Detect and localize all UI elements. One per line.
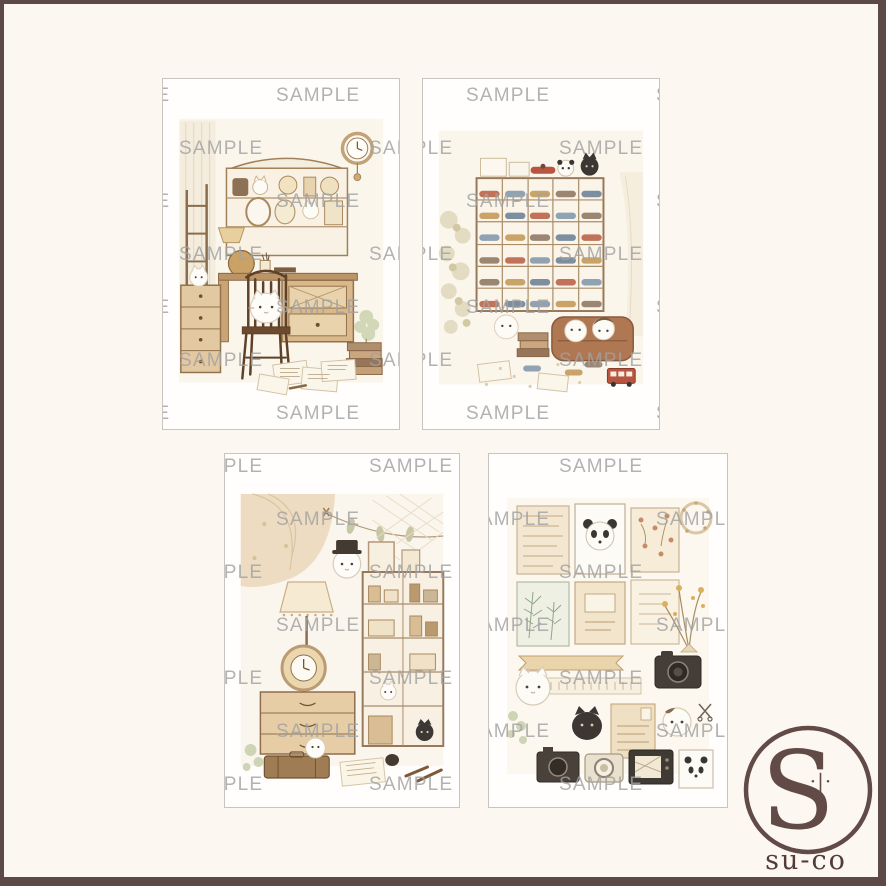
watermark-text: SAMPLE (369, 562, 453, 584)
suco-logo: S ·|· su-co (724, 718, 886, 880)
watermark-text: SAMPLE (656, 191, 659, 213)
watermark-text: SAMPLE (369, 244, 399, 266)
watermark-text: SAMPLE (163, 191, 170, 213)
watermark-text: SAMPLE (656, 509, 727, 531)
watermark-text: SAMPLE (276, 191, 360, 213)
watermark-text: SAMPLE (489, 509, 550, 531)
watermark-text: SAMPLE (423, 244, 453, 266)
watermark-text: SAMPLE (559, 668, 643, 690)
watermark-text: SAMPLE (163, 85, 170, 107)
watermark-text: SAMPLE (225, 562, 263, 584)
watermark-text: SAMPLE (225, 668, 263, 690)
watermark-layer: SAMPLESAMPLESAMPLESAMPLESAMPLESAMPLESAMP… (489, 454, 727, 807)
watermark-text: SAMPLE (179, 244, 263, 266)
watermark-text: SAMPLE (276, 297, 360, 319)
logo-marks: ·|· (810, 769, 832, 794)
watermark-text: SAMPLE (276, 403, 360, 425)
watermark-text: SAMPLE (276, 509, 360, 531)
sample-card-1: SAMPLESAMPLESAMPLESAMPLESAMPLESAMPLESAMP… (162, 78, 400, 430)
watermark-text: SAMPLE (369, 668, 453, 690)
watermark-text: SAMPLE (466, 403, 550, 425)
watermark-text: SAMPLE (559, 350, 643, 372)
watermark-text: SAMPLE (466, 191, 550, 213)
watermark-text: SAMPLE (179, 138, 263, 160)
watermark-text: SAMPLE (489, 721, 550, 743)
watermark-text: SAMPLE (656, 615, 727, 637)
watermark-text: SAMPLE (369, 774, 453, 796)
product-image: SAMPLESAMPLESAMPLESAMPLESAMPLESAMPLESAMP… (0, 0, 886, 886)
watermark-text: SAMPLE (163, 403, 170, 425)
watermark-text: SAMPLE (466, 85, 550, 107)
watermark-text: SAMPLE (369, 138, 399, 160)
watermark-text: SAMPLE (466, 297, 550, 319)
watermark-text: SAMPLE (559, 562, 643, 584)
watermark-text: SAMPLE (559, 244, 643, 266)
watermark-text: SAMPLE (656, 403, 659, 425)
watermark-text: SAMPLE (656, 721, 727, 743)
watermark-text: SAMPLE (489, 615, 550, 637)
watermark-text: SAMPLE (179, 350, 263, 372)
watermark-layer: SAMPLESAMPLESAMPLESAMPLESAMPLESAMPLESAMP… (225, 454, 459, 807)
watermark-text: SAMPLE (276, 721, 360, 743)
watermark-text: SAMPLE (559, 456, 643, 478)
watermark-layer: SAMPLESAMPLESAMPLESAMPLESAMPLESAMPLESAMP… (163, 79, 399, 429)
watermark-text: SAMPLE (656, 297, 659, 319)
watermark-text: SAMPLE (423, 350, 453, 372)
watermark-text: SAMPLE (423, 138, 453, 160)
watermark-text: SAMPLE (369, 456, 453, 478)
watermark-text: SAMPLE (163, 297, 170, 319)
sample-card-4: SAMPLESAMPLESAMPLESAMPLESAMPLESAMPLESAMP… (488, 453, 728, 808)
watermark-text: SAMPLE (559, 138, 643, 160)
watermark-text: SAMPLE (656, 85, 659, 107)
watermark-text: SAMPLE (276, 85, 360, 107)
watermark-text: SAMPLE (225, 456, 263, 478)
sample-card-3: SAMPLESAMPLESAMPLESAMPLESAMPLESAMPLESAMP… (224, 453, 460, 808)
watermark-text: SAMPLE (276, 615, 360, 637)
watermark-text: SAMPLE (225, 774, 263, 796)
logo-brand-name: su-co (765, 845, 847, 876)
watermark-layer: SAMPLESAMPLESAMPLESAMPLESAMPLESAMPLESAMP… (423, 79, 659, 429)
watermark-text: SAMPLE (369, 350, 399, 372)
watermark-text: SAMPLE (559, 774, 643, 796)
sample-card-2: SAMPLESAMPLESAMPLESAMPLESAMPLESAMPLESAMP… (422, 78, 660, 430)
